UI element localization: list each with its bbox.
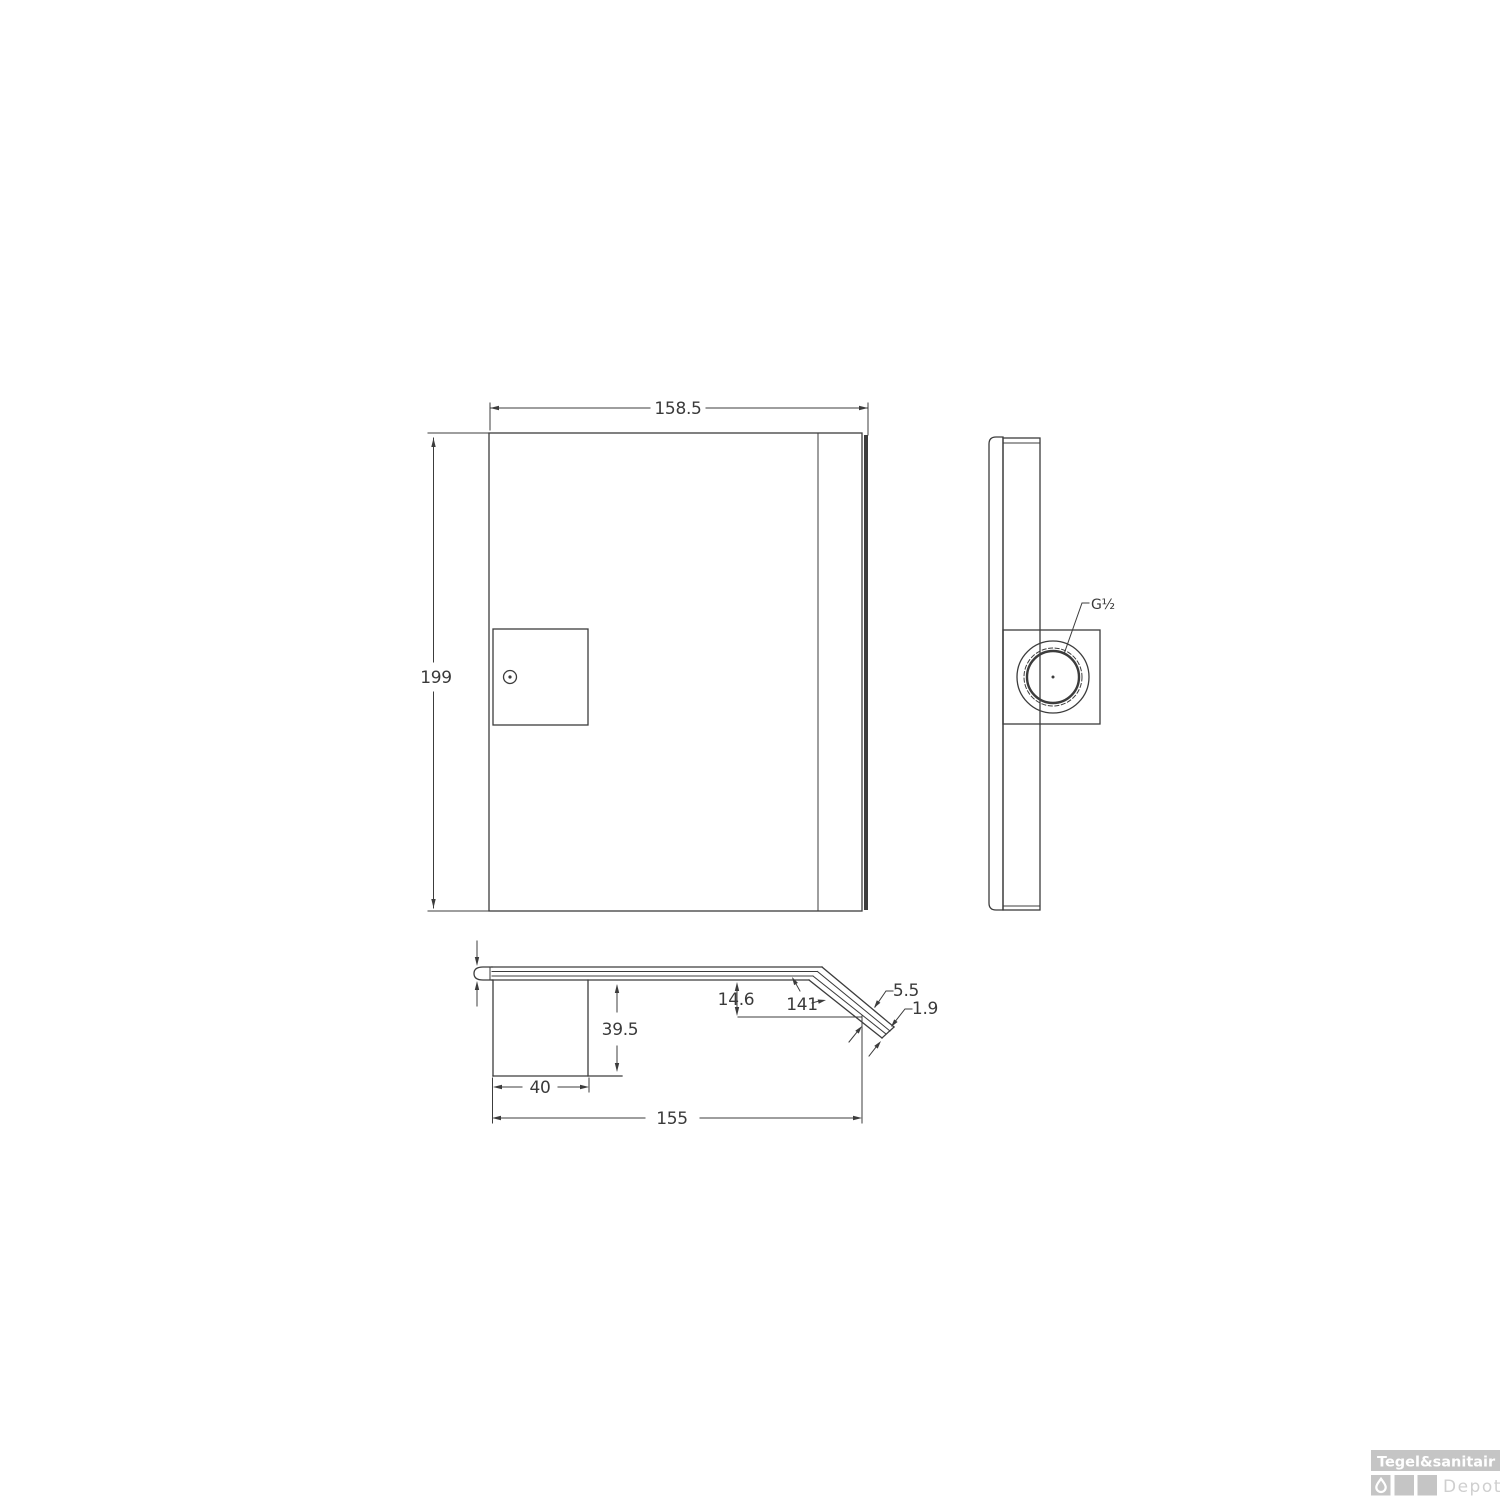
front-view [489,433,866,911]
front-panel-outline [489,433,862,911]
glass-thickness-label: 1.9 [912,999,938,1019]
brand-name: Tegel&sanitair [1377,1455,1496,1471]
drawing-canvas: 158.5 199 G½ [0,0,1500,1500]
dim-front-height: 199 [420,433,488,911]
side-view [989,437,1100,910]
brand-watermark: Tegel&sanitair Depot [1371,1450,1500,1497]
dim-inlet-width: 40 [493,1078,589,1098]
screw-center-dot [508,675,511,678]
dim-glass-thickness: 1.9 [869,999,938,1056]
brand-square-3 [1418,1475,1438,1496]
inlet-depth-label: 39.5 [602,1020,639,1040]
thread-leader-line [1064,603,1089,654]
inlet-width-label: 40 [529,1078,550,1098]
inlet-center-dot [1052,676,1055,679]
brand-square-2 [1395,1475,1415,1496]
brand-subname: Depot [1443,1477,1500,1497]
dim-angle: 141 [786,977,826,1015]
dim-total-depth: 155 [492,1016,862,1129]
front-width-label: 158.5 [654,399,701,419]
spout-tip-outline [474,967,492,980]
side-body-outline [1003,438,1040,910]
dim-front-width: 158.5 [490,399,868,435]
total-depth-label: 155 [656,1109,688,1129]
inlet-box-outline [493,629,588,725]
top-view [474,967,894,1076]
dim-tip-thickness [475,941,479,1006]
technical-drawing: 158.5 199 G½ [0,0,1500,1500]
angle-label: 141 [786,995,818,1015]
front-height-label: 199 [420,668,452,688]
dim-inlet-depth: 39.5 [602,984,639,1072]
thickness-label: 5.5 [893,981,919,1001]
side-glass-strip [989,437,1003,910]
thread-label: G½ [1091,597,1115,613]
